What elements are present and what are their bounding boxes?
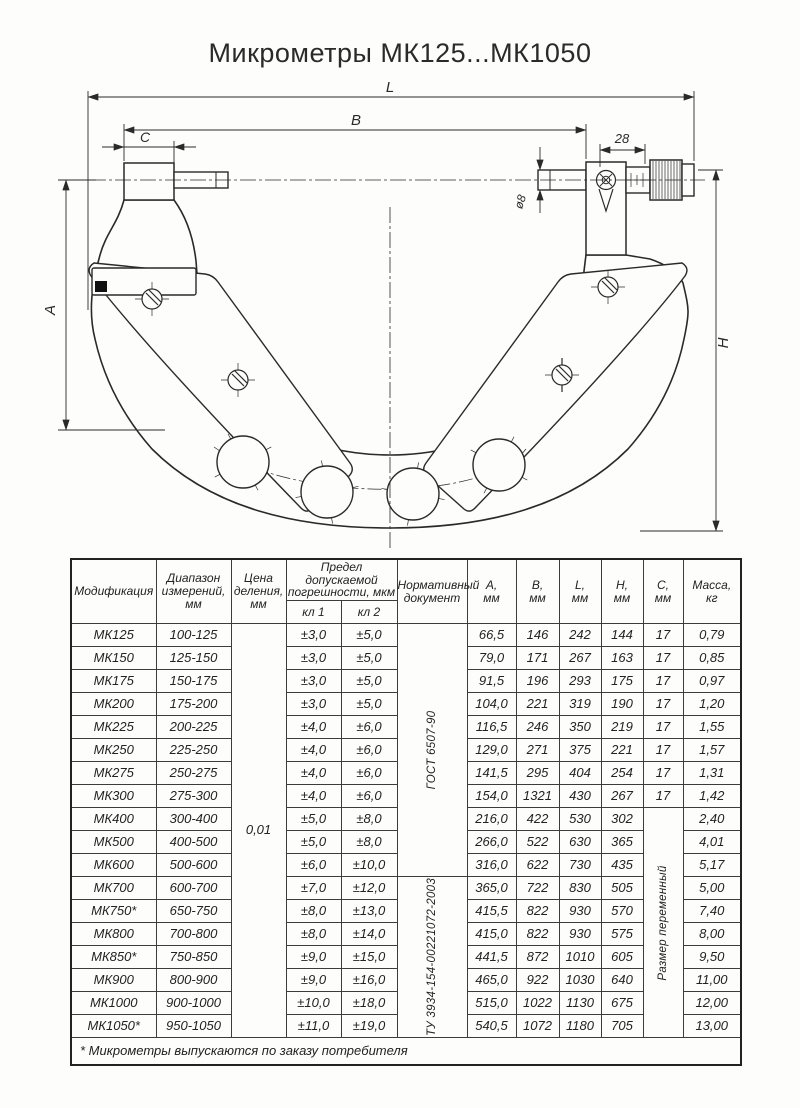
cell-l: 1130 — [559, 992, 601, 1015]
spec-table: Модификация Диапазон измерений, мм Цена … — [70, 558, 742, 1066]
cell-class1: ±3,0 — [286, 624, 341, 647]
cell-h: 575 — [601, 923, 643, 946]
cell-class1: ±7,0 — [286, 877, 341, 900]
cell-range: 125-150 — [156, 647, 231, 670]
cell-b: 1022 — [516, 992, 559, 1015]
cell-l: 430 — [559, 785, 601, 808]
cell-a: 104,0 — [467, 693, 516, 716]
cell-range: 200-225 — [156, 716, 231, 739]
cell-class2: ±18,0 — [341, 992, 397, 1015]
cell-mass: 1,20 — [683, 693, 741, 716]
cell-range: 300-400 — [156, 808, 231, 831]
cell-a: 66,5 — [467, 624, 516, 647]
cell-range: 700-800 — [156, 923, 231, 946]
dim-label-L: L — [386, 79, 394, 96]
catalog-page: Микрометры МК125...МК1050 — [0, 0, 800, 1108]
cell-document-tu: ТУ 3934-154-00221072-2003 — [397, 877, 467, 1038]
cell-h: 190 — [601, 693, 643, 716]
cell-mass: 1,57 — [683, 739, 741, 762]
cell-h: 640 — [601, 969, 643, 992]
cell-class2: ±8,0 — [341, 808, 397, 831]
cell-b: 822 — [516, 900, 559, 923]
cell-b: 196 — [516, 670, 559, 693]
cell-c-variable: Размер переменный — [643, 808, 683, 1038]
cell-a: 266,0 — [467, 831, 516, 854]
cell-l: 1030 — [559, 969, 601, 992]
cell-range: 150-175 — [156, 670, 231, 693]
cell-l: 404 — [559, 762, 601, 785]
cell-class2: ±12,0 — [341, 877, 397, 900]
cell-modification: МК900 — [71, 969, 156, 992]
cell-b: 922 — [516, 969, 559, 992]
cell-mass: 9,50 — [683, 946, 741, 969]
anvil-block — [124, 163, 174, 200]
cell-class2: ±13,0 — [341, 900, 397, 923]
cell-b: 872 — [516, 946, 559, 969]
cell-range: 175-200 — [156, 693, 231, 716]
cell-range: 750-850 — [156, 946, 231, 969]
cell-class2: ±16,0 — [341, 969, 397, 992]
cell-mass: 5,17 — [683, 854, 741, 877]
cell-modification: МК1050* — [71, 1015, 156, 1038]
cell-class1: ±4,0 — [286, 762, 341, 785]
cell-class2: ±15,0 — [341, 946, 397, 969]
cell-class1: ±9,0 — [286, 969, 341, 992]
cell-a: 129,0 — [467, 739, 516, 762]
cell-a: 365,0 — [467, 877, 516, 900]
cell-modification: МК150 — [71, 647, 156, 670]
nameplate — [92, 268, 196, 295]
cell-class2: ±6,0 — [341, 716, 397, 739]
cell-class2: ±14,0 — [341, 923, 397, 946]
cell-l: 350 — [559, 716, 601, 739]
cell-mass: 1,55 — [683, 716, 741, 739]
cell-modification: МК750* — [71, 900, 156, 923]
cell-l: 319 — [559, 693, 601, 716]
header-error-limit: Предел допускаемой погрешности, мкм — [286, 559, 397, 601]
cell-a: 515,0 — [467, 992, 516, 1015]
cell-class1: ±8,0 — [286, 900, 341, 923]
cell-a: 415,0 — [467, 923, 516, 946]
cell-modification: МК400 — [71, 808, 156, 831]
cell-l: 530 — [559, 808, 601, 831]
cell-range: 950-1050 — [156, 1015, 231, 1038]
cell-c: 17 — [643, 624, 683, 647]
cell-l: 242 — [559, 624, 601, 647]
cell-range: 100-125 — [156, 624, 231, 647]
cell-l: 830 — [559, 877, 601, 900]
cell-l: 1010 — [559, 946, 601, 969]
cell-range: 400-500 — [156, 831, 231, 854]
cell-mass: 1,31 — [683, 762, 741, 785]
cell-b: 221 — [516, 693, 559, 716]
cell-a: 441,5 — [467, 946, 516, 969]
dim-label-A: A — [42, 305, 59, 316]
cell-modification: МК600 — [71, 854, 156, 877]
cell-class1: ±4,0 — [286, 785, 341, 808]
cell-mass: 5,00 — [683, 877, 741, 900]
cell-a: 79,0 — [467, 647, 516, 670]
dim-label-28: 28 — [614, 131, 630, 146]
cell-h: 705 — [601, 1015, 643, 1038]
cell-range: 500-600 — [156, 854, 231, 877]
micrometer-technical-drawing: L B C 28 ø8 A H — [0, 75, 800, 555]
cell-h: 221 — [601, 739, 643, 762]
dim-label-H: H — [715, 337, 732, 348]
cell-document-gost: ГОСТ 6507-90 — [397, 624, 467, 877]
cell-l: 375 — [559, 739, 601, 762]
cell-class1: ±3,0 — [286, 693, 341, 716]
cell-h: 163 — [601, 647, 643, 670]
cell-a: 465,0 — [467, 969, 516, 992]
cell-c: 17 — [643, 762, 683, 785]
cell-class1: ±3,0 — [286, 647, 341, 670]
cell-modification: МК850* — [71, 946, 156, 969]
cell-modification: МК1000 — [71, 992, 156, 1015]
dim-label-C: C — [140, 129, 151, 145]
cell-class2: ±6,0 — [341, 762, 397, 785]
cell-modification: МК200 — [71, 693, 156, 716]
header-l: L, мм — [559, 559, 601, 624]
cell-class2: ±5,0 — [341, 693, 397, 716]
cell-modification: МК300 — [71, 785, 156, 808]
cell-b: 722 — [516, 877, 559, 900]
table-row: МК125100-1250,01±3,0±5,0ГОСТ 6507-9066,5… — [71, 624, 741, 647]
cell-modification: МК125 — [71, 624, 156, 647]
header-mass: Масса, кг — [683, 559, 741, 624]
cell-h: 219 — [601, 716, 643, 739]
cell-h: 254 — [601, 762, 643, 785]
cell-a: 540,5 — [467, 1015, 516, 1038]
cell-a: 415,5 — [467, 900, 516, 923]
footnote-row: * Микрометры выпускаются по заказу потре… — [71, 1038, 741, 1066]
cell-l: 730 — [559, 854, 601, 877]
cell-l: 293 — [559, 670, 601, 693]
cell-class2: ±19,0 — [341, 1015, 397, 1038]
cell-b: 246 — [516, 716, 559, 739]
cell-b: 822 — [516, 923, 559, 946]
cell-mass: 0,85 — [683, 647, 741, 670]
cell-l: 267 — [559, 647, 601, 670]
cell-modification: МК250 — [71, 739, 156, 762]
cell-h: 175 — [601, 670, 643, 693]
cell-price-division: 0,01 — [231, 624, 286, 1038]
cell-mass: 13,00 — [683, 1015, 741, 1038]
cell-range: 800-900 — [156, 969, 231, 992]
cell-h: 505 — [601, 877, 643, 900]
header-division: Цена деления, мм — [231, 559, 286, 624]
header-class2: кл 2 — [341, 601, 397, 624]
cell-class1: ±6,0 — [286, 854, 341, 877]
cell-l: 930 — [559, 900, 601, 923]
cell-range: 225-250 — [156, 739, 231, 762]
cell-class1: ±9,0 — [286, 946, 341, 969]
cell-b: 622 — [516, 854, 559, 877]
cell-mass: 2,40 — [683, 808, 741, 831]
cell-h: 435 — [601, 854, 643, 877]
cell-class2: ±8,0 — [341, 831, 397, 854]
cell-class1: ±10,0 — [286, 992, 341, 1015]
cell-class1: ±4,0 — [286, 716, 341, 739]
cell-l: 1180 — [559, 1015, 601, 1038]
cell-range: 650-750 — [156, 900, 231, 923]
cell-b: 271 — [516, 739, 559, 762]
cell-a: 141,5 — [467, 762, 516, 785]
cell-b: 422 — [516, 808, 559, 831]
cell-a: 216,0 — [467, 808, 516, 831]
cell-class2: ±5,0 — [341, 624, 397, 647]
cell-h: 302 — [601, 808, 643, 831]
cell-a: 91,5 — [467, 670, 516, 693]
header-b: В, мм — [516, 559, 559, 624]
cell-h: 570 — [601, 900, 643, 923]
cell-b: 522 — [516, 831, 559, 854]
cell-class2: ±5,0 — [341, 670, 397, 693]
header-c: С, мм — [643, 559, 683, 624]
cell-h: 144 — [601, 624, 643, 647]
cell-c: 17 — [643, 785, 683, 808]
dim-label-d8: ø8 — [511, 193, 529, 211]
cell-class1: ±4,0 — [286, 739, 341, 762]
header-class1: кл 1 — [286, 601, 341, 624]
cell-mass: 0,79 — [683, 624, 741, 647]
cell-h: 365 — [601, 831, 643, 854]
cell-mass: 4,01 — [683, 831, 741, 854]
table-row: МК700600-700±7,0±12,0ТУ 3934-154-0022107… — [71, 877, 741, 900]
cell-range: 900-1000 — [156, 992, 231, 1015]
cell-class2: ±5,0 — [341, 647, 397, 670]
cell-class2: ±6,0 — [341, 739, 397, 762]
header-document: Нормативный документ — [397, 559, 467, 624]
cell-class1: ±5,0 — [286, 831, 341, 854]
cell-modification: МК700 — [71, 877, 156, 900]
cell-class1: ±8,0 — [286, 923, 341, 946]
cell-class1: ±5,0 — [286, 808, 341, 831]
cell-l: 930 — [559, 923, 601, 946]
footnote-text: * Микрометры выпускаются по заказу потре… — [71, 1038, 741, 1066]
cell-mass: 7,40 — [683, 900, 741, 923]
cell-range: 600-700 — [156, 877, 231, 900]
cell-mass: 1,42 — [683, 785, 741, 808]
cell-modification: МК800 — [71, 923, 156, 946]
cell-modification: МК225 — [71, 716, 156, 739]
cell-modification: МК275 — [71, 762, 156, 785]
cell-range: 250-275 — [156, 762, 231, 785]
cell-b: 1321 — [516, 785, 559, 808]
cell-class1: ±11,0 — [286, 1015, 341, 1038]
cell-mass: 11,00 — [683, 969, 741, 992]
cell-class2: ±10,0 — [341, 854, 397, 877]
cell-range: 275-300 — [156, 785, 231, 808]
cell-mass: 12,00 — [683, 992, 741, 1015]
cell-c: 17 — [643, 647, 683, 670]
cell-class1: ±3,0 — [286, 670, 341, 693]
page-title: Микрометры МК125...МК1050 — [0, 38, 800, 69]
cell-a: 116,5 — [467, 716, 516, 739]
header-range: Диапазон измерений, мм — [156, 559, 231, 624]
cell-c: 17 — [643, 670, 683, 693]
header-h: Н, мм — [601, 559, 643, 624]
cell-mass: 8,00 — [683, 923, 741, 946]
cell-h: 267 — [601, 785, 643, 808]
dim-label-B: B — [351, 112, 361, 129]
cell-class2: ±6,0 — [341, 785, 397, 808]
cell-c: 17 — [643, 716, 683, 739]
cell-b: 171 — [516, 647, 559, 670]
header-modification: Модификация — [71, 559, 156, 624]
cell-a: 154,0 — [467, 785, 516, 808]
cell-c: 17 — [643, 739, 683, 762]
cell-modification: МК500 — [71, 831, 156, 854]
cell-modification: МК175 — [71, 670, 156, 693]
cell-b: 295 — [516, 762, 559, 785]
nameplate-mark — [95, 281, 107, 292]
cell-mass: 0,97 — [683, 670, 741, 693]
cell-b: 146 — [516, 624, 559, 647]
cell-c: 17 — [643, 693, 683, 716]
cell-h: 675 — [601, 992, 643, 1015]
cell-h: 605 — [601, 946, 643, 969]
cell-a: 316,0 — [467, 854, 516, 877]
cell-b: 1072 — [516, 1015, 559, 1038]
cell-l: 630 — [559, 831, 601, 854]
